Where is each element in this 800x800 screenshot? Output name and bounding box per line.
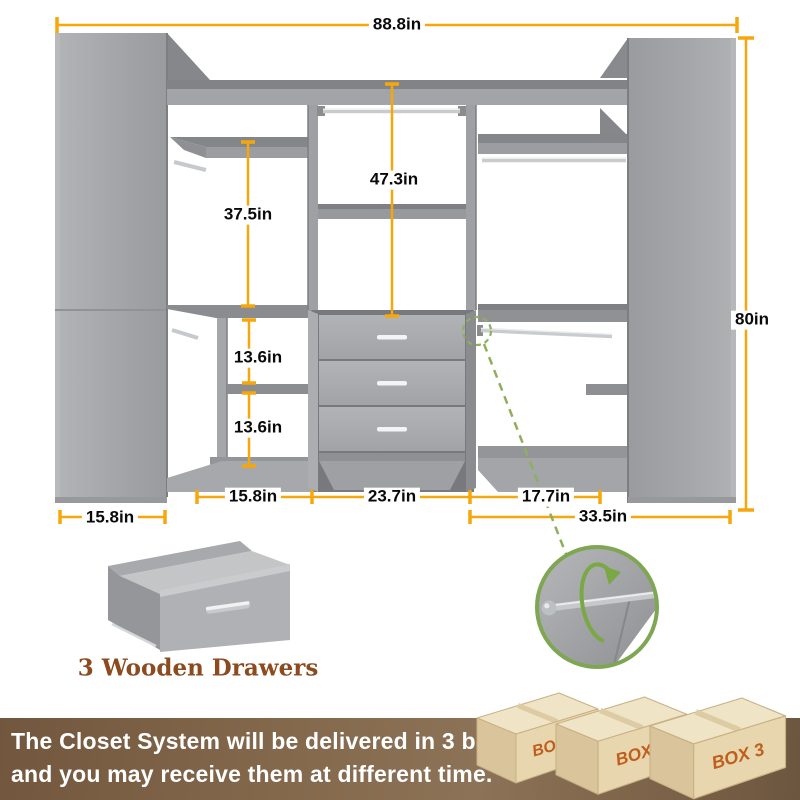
dim-total-width: 88.8in bbox=[369, 16, 425, 35]
drawer-handle bbox=[377, 427, 407, 432]
left-tower-panel bbox=[55, 33, 210, 503]
dim-cubby-top: 13.6in bbox=[230, 349, 286, 368]
closet-rod-zoomed bbox=[549, 594, 660, 608]
dim-center-height: 47.3in bbox=[366, 171, 422, 190]
detail-source-circle bbox=[463, 317, 491, 345]
dim-left-col-width: 15.8in bbox=[225, 488, 281, 507]
callout-connector-line bbox=[484, 344, 566, 554]
dim-total-height: 80in bbox=[731, 311, 773, 330]
left-corner-cubby-unit bbox=[167, 305, 318, 492]
closet-rod bbox=[172, 330, 198, 338]
dimension-lines bbox=[57, 17, 754, 524]
dim-right-total: 33.5in bbox=[575, 508, 631, 527]
center-column-unit bbox=[308, 80, 628, 492]
drawer-front bbox=[319, 361, 465, 405]
closet-infographic: The Closet System will be delivered in 3… bbox=[0, 0, 800, 800]
dim-cubby-bottom: 13.6in bbox=[230, 419, 286, 438]
drawer-caption: 3 Wooden Drawers bbox=[78, 655, 319, 682]
drawer-handle bbox=[377, 381, 407, 386]
dim-left-height: 37.5in bbox=[220, 206, 276, 225]
rotation-arrow-icon bbox=[582, 564, 621, 641]
drawer-front bbox=[319, 407, 465, 451]
dim-center-col-width: 23.7in bbox=[364, 488, 420, 507]
right-lower-rod bbox=[477, 325, 612, 336]
dim-right-col-width: 17.7in bbox=[518, 488, 574, 507]
drawer-handle bbox=[206, 601, 251, 614]
banner-text-line1: The Closet System will be delivered in 3… bbox=[11, 728, 529, 755]
magnifier-circle bbox=[535, 545, 665, 671]
right-column-shelves bbox=[477, 108, 628, 492]
banner-text-line2: and you may receive them at different ti… bbox=[11, 761, 493, 788]
wooden-drawer-illustration bbox=[108, 541, 290, 652]
delivery-banner: The Closet System will be delivered in 3… bbox=[0, 718, 800, 800]
dim-tower-depth: 15.8in bbox=[82, 509, 138, 528]
right-tower-panel bbox=[600, 38, 736, 503]
right-upper-rod bbox=[482, 158, 626, 160]
drawer-front bbox=[319, 315, 465, 359]
closet-rod bbox=[174, 162, 206, 170]
drawer-handle bbox=[377, 335, 407, 340]
left-column-shelves bbox=[167, 80, 308, 170]
center-hanging-rod bbox=[317, 106, 466, 116]
three-drawer-unit bbox=[308, 310, 476, 492]
